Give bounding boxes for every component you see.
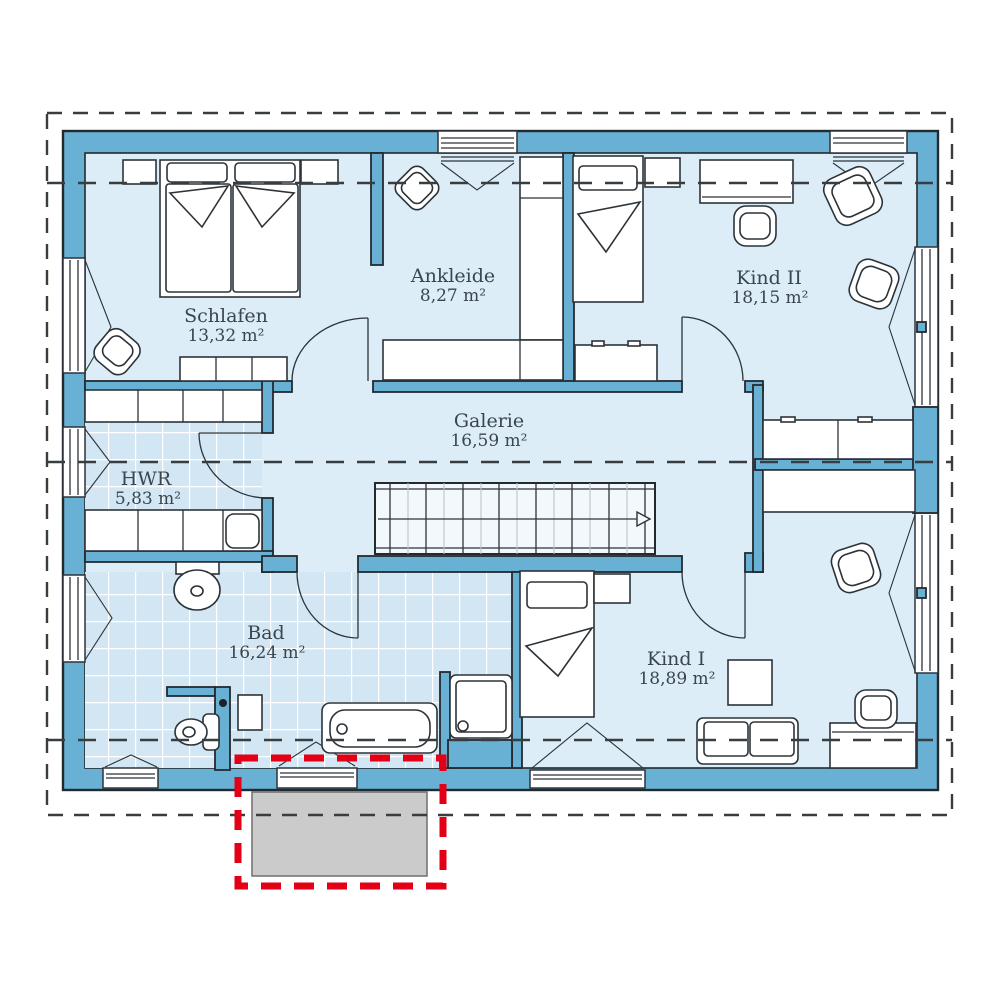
sideboard — [180, 357, 287, 381]
wall-hwr-east-upper — [262, 381, 273, 433]
room-area-kind2: 18,15 m² — [731, 288, 808, 308]
wall-bad-north-left — [262, 556, 297, 572]
bathtub — [322, 703, 437, 753]
wall-schlafen-ankleide — [371, 153, 383, 265]
room-label-kind1: Kind I — [647, 648, 705, 670]
room-label-schlafen: Schlafen — [184, 305, 268, 327]
room-label-ankleide: Ankleide — [410, 265, 495, 287]
sideboard — [763, 417, 913, 459]
sideboard — [575, 341, 657, 381]
wall-wc-partition-top — [167, 687, 215, 696]
window-handle — [917, 588, 926, 598]
shower — [450, 675, 512, 738]
room-label-galerie: Galerie — [454, 410, 524, 432]
wall-east-pier — [913, 407, 938, 513]
room-area-hwr: 5,83 m² — [115, 489, 181, 509]
room-area-kind1: 18,89 m² — [638, 669, 715, 689]
wall-kind2-kind1 — [755, 459, 917, 470]
desk-chair — [855, 690, 897, 728]
desk — [700, 160, 793, 203]
shelf — [594, 574, 630, 603]
floor-plan: Schlafen 13,32 m² Ankleide 8,27 m² Kind … — [0, 0, 1000, 1000]
pillow — [527, 582, 587, 608]
pillow — [579, 166, 637, 190]
wall-galerie-east — [753, 385, 763, 572]
single-bed — [573, 156, 643, 302]
double-bed — [160, 160, 300, 297]
pillow — [235, 163, 295, 182]
pillow — [167, 163, 227, 182]
room-label-bad: Bad — [247, 622, 284, 644]
wall-hwr-south — [85, 551, 273, 562]
room-area-ankleide: 8,27 m² — [420, 286, 486, 306]
room-label-kind2: Kind II — [736, 267, 802, 289]
wall-galerie-south — [358, 556, 682, 572]
room-area-bad: 16,24 m² — [228, 643, 305, 663]
room-area-schlafen: 13,32 m² — [187, 326, 264, 346]
cabinet-row — [85, 390, 262, 422]
room-label-hwr: HWR — [121, 468, 172, 490]
nightstand — [123, 160, 156, 184]
single-bed — [520, 571, 594, 717]
bath-cabinet — [238, 695, 262, 730]
desk — [830, 723, 916, 768]
table — [728, 660, 772, 705]
cabinet-row — [85, 510, 262, 551]
desk-chair — [734, 206, 776, 246]
nightstand — [301, 160, 338, 184]
wall-shower-south — [448, 740, 512, 768]
wall-galerie-north — [373, 381, 682, 392]
window-handle — [917, 322, 926, 332]
washbasin — [174, 562, 220, 610]
washing-machine — [226, 514, 259, 548]
stairs — [375, 483, 655, 554]
sideboard — [763, 470, 915, 512]
pipe-dot — [219, 699, 227, 707]
room-area-galerie: 16,59 m² — [450, 431, 527, 451]
dormer-area-gray — [252, 792, 427, 876]
